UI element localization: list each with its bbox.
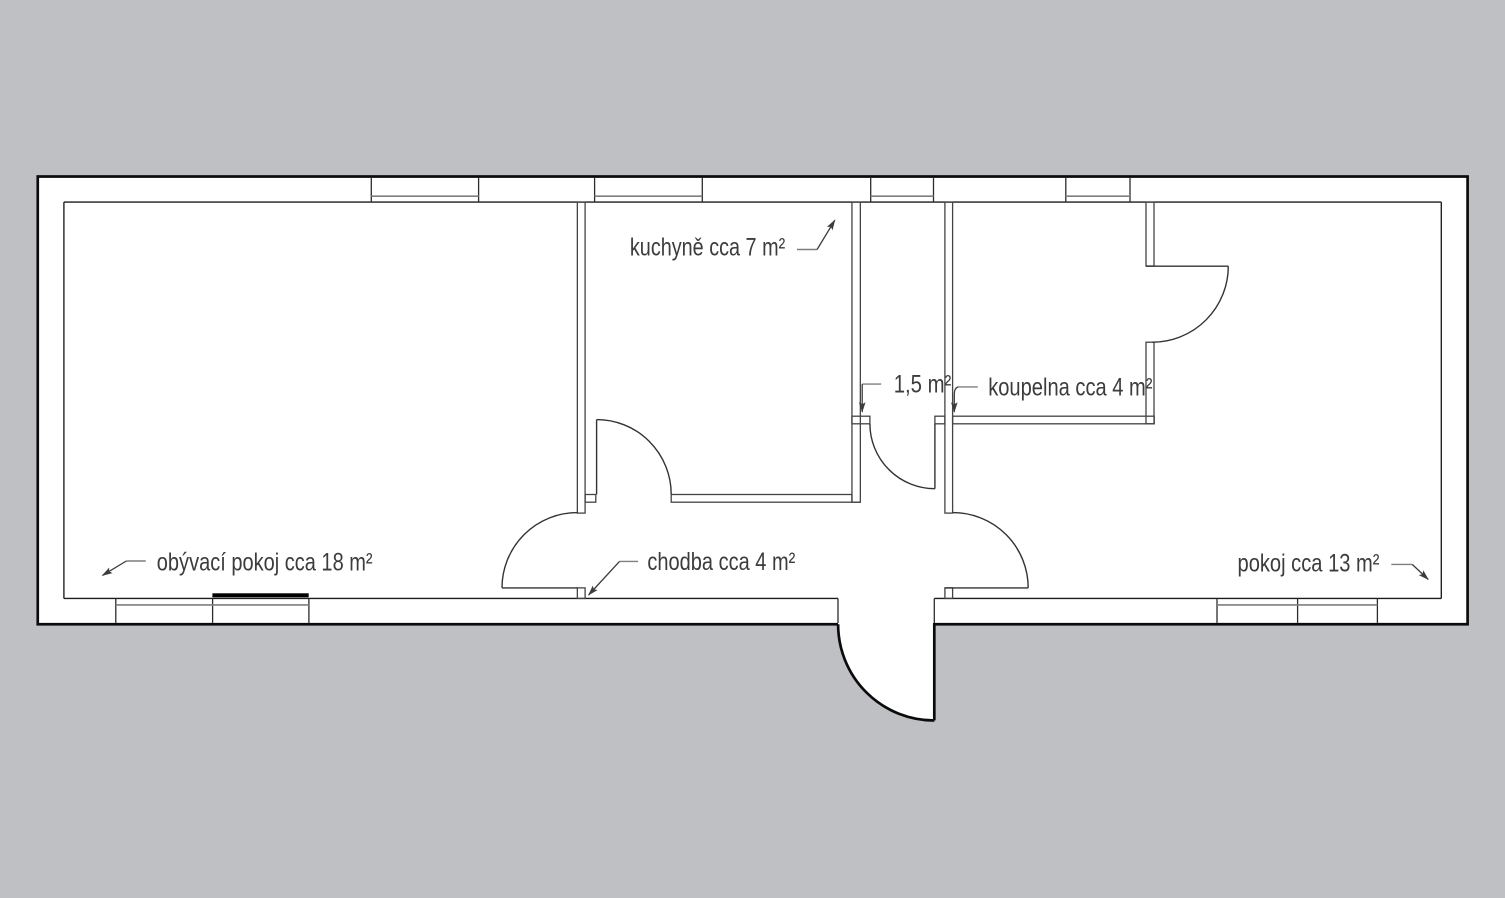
svg-text:obývací pokoj cca 18 m²: obývací pokoj cca 18 m²: [157, 549, 373, 577]
svg-text:pokoj cca 13 m²: pokoj cca 13 m²: [1238, 549, 1380, 577]
svg-text:chodba cca 4 m²: chodba cca 4 m²: [647, 548, 795, 576]
svg-text:1,5 m²: 1,5 m²: [894, 370, 952, 398]
svg-text:koupelna cca 4 m²: koupelna cca 4 m²: [988, 373, 1152, 401]
svg-text:kuchyně cca 7 m²: kuchyně cca 7 m²: [630, 234, 785, 262]
